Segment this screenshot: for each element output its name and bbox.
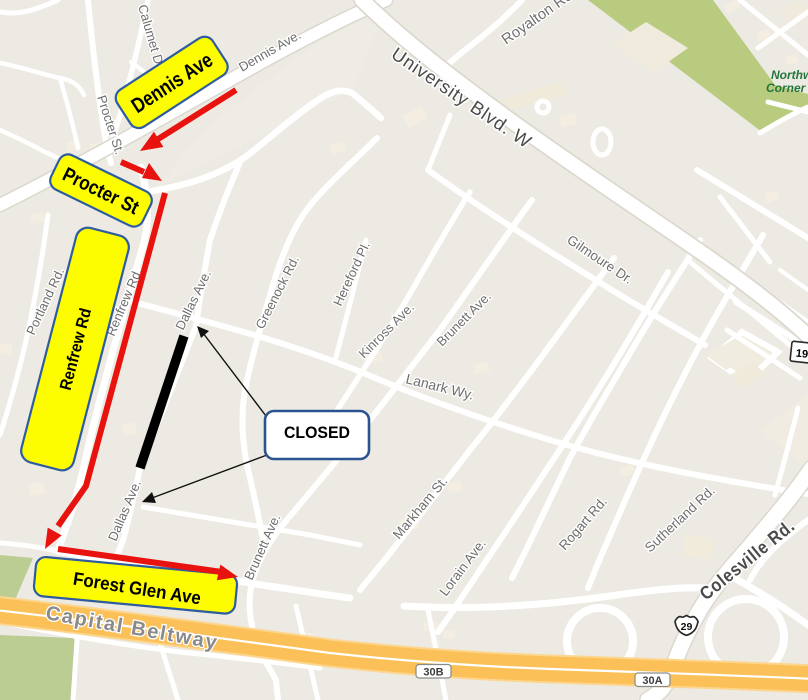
svg-text:Northwe: Northwe bbox=[771, 68, 808, 82]
svg-text:193: 193 bbox=[795, 348, 808, 362]
svg-text:Corner: Corner bbox=[766, 81, 807, 95]
svg-text:29: 29 bbox=[681, 621, 693, 633]
svg-text:CLOSED: CLOSED bbox=[284, 423, 350, 442]
svg-text:30B: 30B bbox=[423, 666, 443, 678]
svg-text:30A: 30A bbox=[642, 675, 662, 687]
